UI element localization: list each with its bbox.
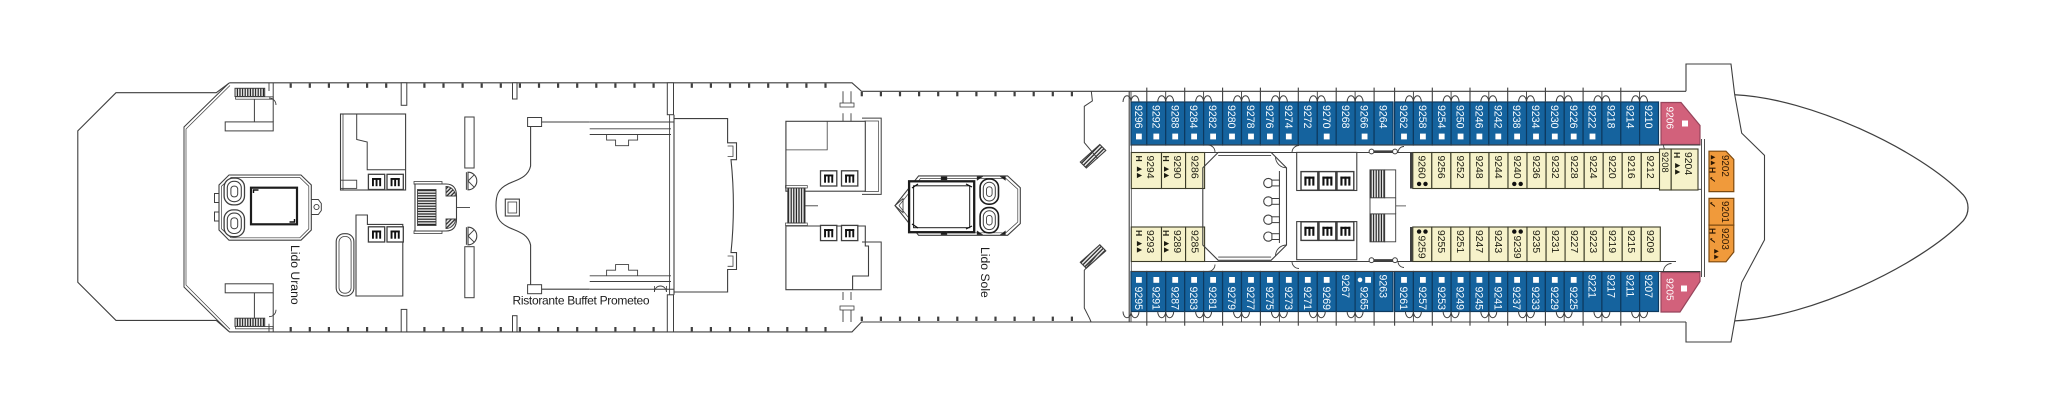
- svg-text:9280: 9280: [1225, 105, 1237, 129]
- svg-text:9258: 9258: [1416, 105, 1428, 129]
- svg-text:✓: ✓: [1708, 201, 1718, 208]
- svg-text:9265: 9265: [1358, 287, 1370, 311]
- svg-text:9292: 9292: [1149, 105, 1161, 129]
- svg-text:✓: ✓: [1708, 237, 1718, 244]
- svg-text:9290: 9290: [1171, 156, 1182, 179]
- svg-text:9294: 9294: [1144, 156, 1155, 179]
- svg-text:9219: 9219: [1606, 230, 1617, 253]
- svg-text:9289: 9289: [1171, 230, 1182, 253]
- svg-text:9239: 9239: [1511, 236, 1522, 259]
- svg-text:H: H: [1134, 156, 1144, 162]
- svg-text:9236: 9236: [1530, 156, 1541, 179]
- svg-text:9211: 9211: [1623, 275, 1635, 298]
- svg-text:9273: 9273: [1282, 287, 1294, 311]
- svg-text:9291: 9291: [1149, 287, 1161, 311]
- svg-text:9208: 9208: [1660, 152, 1670, 173]
- svg-text:9252: 9252: [1454, 156, 1465, 179]
- svg-text:9254: 9254: [1435, 105, 1447, 129]
- svg-text:9268: 9268: [1339, 105, 1351, 129]
- svg-text:9261: 9261: [1397, 287, 1409, 311]
- svg-text:9240: 9240: [1511, 156, 1522, 179]
- svg-text:9276: 9276: [1263, 105, 1275, 129]
- svg-text:9215: 9215: [1625, 230, 1636, 253]
- svg-text:9235: 9235: [1530, 230, 1541, 253]
- svg-text:9245: 9245: [1473, 287, 1485, 311]
- svg-text:9277: 9277: [1244, 287, 1256, 311]
- svg-text:9249: 9249: [1454, 287, 1466, 311]
- svg-text:H: H: [1161, 156, 1171, 162]
- svg-text:9281: 9281: [1206, 287, 1218, 311]
- svg-text:9243: 9243: [1492, 230, 1503, 253]
- svg-text:9214: 9214: [1623, 105, 1635, 129]
- svg-text:9286: 9286: [1189, 156, 1200, 179]
- svg-text:9244: 9244: [1492, 156, 1503, 179]
- svg-text:9250: 9250: [1454, 105, 1466, 129]
- svg-text:✓: ✓: [1708, 176, 1718, 183]
- svg-text:9234: 9234: [1529, 105, 1541, 129]
- svg-text:9230: 9230: [1548, 105, 1560, 129]
- svg-text:9271: 9271: [1301, 287, 1313, 311]
- svg-text:9223: 9223: [1587, 230, 1598, 253]
- svg-text:9279: 9279: [1225, 287, 1237, 311]
- svg-text:9206: 9206: [1664, 107, 1675, 130]
- svg-text:9255: 9255: [1435, 230, 1446, 253]
- svg-text:9218: 9218: [1605, 105, 1617, 129]
- svg-text:9242: 9242: [1491, 105, 1503, 129]
- svg-text:9212: 9212: [1644, 156, 1655, 179]
- svg-text:9205: 9205: [1664, 278, 1675, 301]
- svg-text:9257: 9257: [1416, 287, 1428, 311]
- svg-text:9216: 9216: [1625, 156, 1636, 179]
- svg-text:9293: 9293: [1144, 230, 1155, 253]
- svg-text:9248: 9248: [1473, 156, 1484, 179]
- svg-text:9203: 9203: [1719, 228, 1730, 250]
- svg-text:9225: 9225: [1567, 287, 1579, 311]
- svg-text:9270: 9270: [1320, 105, 1332, 129]
- svg-text:9267: 9267: [1339, 275, 1351, 299]
- svg-text:9282: 9282: [1206, 105, 1218, 129]
- svg-text:H: H: [1672, 152, 1682, 158]
- svg-text:9222: 9222: [1586, 105, 1598, 129]
- svg-text:9227: 9227: [1568, 230, 1579, 253]
- svg-text:9260: 9260: [1416, 156, 1427, 179]
- svg-text:9209: 9209: [1644, 230, 1655, 253]
- svg-text:H: H: [1708, 167, 1718, 173]
- svg-text:9259: 9259: [1416, 236, 1427, 259]
- svg-text:9220: 9220: [1606, 156, 1617, 179]
- svg-text:9284: 9284: [1187, 105, 1199, 129]
- svg-text:9285: 9285: [1189, 230, 1200, 253]
- svg-text:9202: 9202: [1719, 155, 1730, 177]
- svg-text:9283: 9283: [1187, 287, 1199, 311]
- svg-text:9241: 9241: [1491, 287, 1503, 311]
- svg-text:9217: 9217: [1605, 275, 1617, 299]
- svg-text:9264: 9264: [1377, 105, 1389, 129]
- svg-text:9232: 9232: [1549, 156, 1560, 179]
- svg-text:9266: 9266: [1358, 105, 1370, 129]
- svg-text:Ristorante Buffet Prometeo: Ristorante Buffet Prometeo: [513, 294, 650, 308]
- svg-text:9237: 9237: [1510, 287, 1522, 311]
- svg-text:9233: 9233: [1529, 287, 1541, 311]
- svg-text:9229: 9229: [1548, 287, 1560, 311]
- svg-text:9228: 9228: [1568, 156, 1579, 179]
- svg-text:9224: 9224: [1587, 156, 1598, 179]
- svg-text:9207: 9207: [1642, 275, 1654, 299]
- svg-text:9287: 9287: [1168, 287, 1180, 311]
- svg-text:9296: 9296: [1132, 105, 1144, 129]
- svg-text:9231: 9231: [1549, 230, 1560, 253]
- svg-text:H: H: [1134, 230, 1144, 236]
- svg-text:9210: 9210: [1642, 105, 1654, 129]
- svg-text:H: H: [1708, 228, 1718, 234]
- svg-text:9253: 9253: [1435, 287, 1447, 311]
- svg-text:9275: 9275: [1263, 287, 1275, 311]
- svg-text:9226: 9226: [1567, 105, 1579, 129]
- svg-text:9247: 9247: [1473, 230, 1484, 253]
- svg-text:9262: 9262: [1397, 105, 1409, 129]
- svg-text:9272: 9272: [1301, 105, 1313, 129]
- svg-text:9221: 9221: [1586, 275, 1598, 299]
- svg-text:Lido Urano: Lido Urano: [288, 245, 302, 305]
- svg-text:9246: 9246: [1473, 105, 1485, 129]
- svg-text:9269: 9269: [1320, 287, 1332, 311]
- svg-text:9278: 9278: [1244, 105, 1256, 129]
- svg-text:9201: 9201: [1719, 201, 1730, 223]
- svg-text:9204: 9204: [1682, 152, 1693, 175]
- svg-text:9274: 9274: [1282, 105, 1294, 129]
- svg-text:9263: 9263: [1377, 275, 1389, 299]
- svg-text:9256: 9256: [1435, 156, 1446, 179]
- svg-text:9295: 9295: [1132, 287, 1144, 311]
- svg-text:Lido Sole: Lido Sole: [978, 247, 992, 298]
- svg-text:9238: 9238: [1510, 105, 1522, 129]
- svg-text:H: H: [1161, 230, 1171, 236]
- svg-text:9251: 9251: [1454, 230, 1465, 253]
- svg-text:9288: 9288: [1168, 105, 1180, 129]
